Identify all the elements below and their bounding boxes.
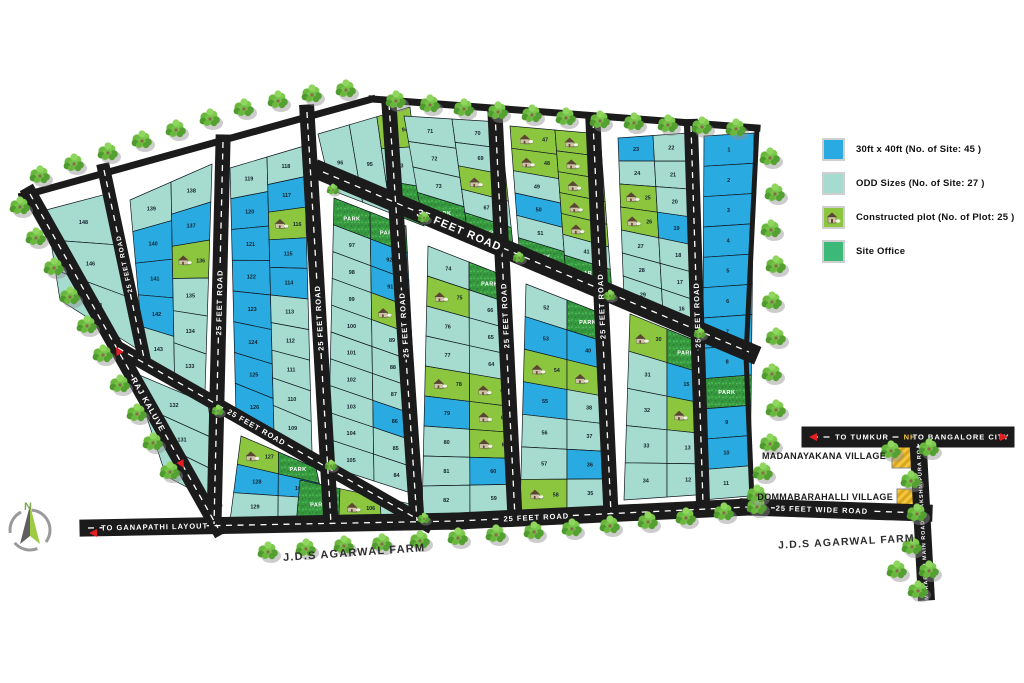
plot-number: 71 [427,129,433,135]
plot-number: 2 [727,178,730,184]
plot-number: 143 [154,347,163,353]
plot-number: 27 [638,244,644,250]
plot-number: 25 [645,195,651,201]
tree-icon [765,183,788,205]
plot-number: 67 [483,206,489,212]
plot-number: 123 [248,307,257,313]
plot-number: 95 [367,162,373,168]
plot-number: 126 [250,405,259,411]
plot-number: 33 [643,443,649,449]
plot-number: 41 [583,249,589,255]
plot-number: 128 [252,480,261,486]
plot-number: 121 [246,242,255,248]
tree-icon [234,98,257,120]
plot-number: 97 [349,243,355,249]
plot-number: 15 [683,382,689,388]
tree-icon [258,541,281,563]
plot-number: 132 [169,403,178,409]
plot-number: 51 [537,231,543,237]
plot-number: 36 [587,463,593,469]
tree-icon [887,560,910,582]
plot-number: 57 [541,462,547,468]
legend: 30ft x 40ft (No. of Site: 45 ) ODD Sizes… [822,138,1014,263]
plot-number: 138 [187,188,196,194]
tree-icon [766,327,789,349]
tree-icon [268,90,291,112]
odd-plot-swatch [822,172,845,195]
legend-label: ODD Sizes (No. of Site: 27 ) [856,178,985,189]
park-label: PARK [289,467,306,473]
plot-number: 110 [287,397,296,403]
plot-number: 137 [186,224,195,230]
plot-number: 102 [347,377,356,383]
house-icon [826,212,841,224]
tree-icon [166,119,189,141]
plot-number: 53 [543,337,549,343]
plot-number: 117 [282,193,291,199]
plot-number: 134 [186,329,196,335]
legend-item-30x40: 30ft x 40ft (No. of Site: 45 ) [822,138,1014,161]
plot-number: 76 [445,324,451,330]
village-label-madanayakana: MADANAYAKANA VILLAGE [762,451,886,461]
plot-number: 9 [725,420,728,426]
plot-number: 10 [723,450,729,456]
plot-number: 73 [436,184,442,190]
legend-item-odd-sizes: ODD Sizes (No. of Site: 27 ) [822,172,1014,195]
plot-number: 112 [286,339,295,345]
plot-number: 86 [392,419,398,425]
plot-number: 127 [265,454,274,460]
plot-number: 16 [679,307,685,313]
plot-number: 12 [685,478,691,484]
site-office-swatch [822,240,845,263]
plot-number: 81 [443,469,449,475]
plot-number: 54 [554,368,560,374]
tree-icon [762,291,785,313]
plot-number: 148 [79,220,88,226]
plot-number: 116 [293,222,302,228]
plot-number: 60 [490,469,496,475]
plot-number: 99 [349,297,355,303]
park-label: PARK [343,216,360,222]
plot-number: 124 [248,340,258,346]
plot-number: 28 [639,268,645,274]
plot-number: 118 [281,164,290,170]
plot-number: 66 [487,308,493,314]
tree-icon [448,527,471,549]
plot-number: 19 [673,226,679,232]
plot-number: 35 [587,491,593,497]
plot-number: 20 [672,199,678,205]
plot-number: 3 [727,208,730,214]
tree-icon [761,219,784,241]
plot-number: 40 [585,349,591,355]
compass: N [2,498,58,561]
plot-number: 98 [349,270,355,276]
plot-number: 139 [147,206,156,212]
park-label: PARK [481,281,498,287]
svg-text:25 FEET ROAD: 25 FEET ROAD [214,269,225,335]
plot-number: 17 [677,280,683,286]
plot-number: 74 [445,266,452,272]
plot-number: 135 [186,294,195,300]
plot-number: 133 [185,364,194,370]
plot-number: 18 [675,253,681,259]
tree-icon [420,94,443,116]
park-label: PARK [579,320,596,326]
constructed-plot-swatch [822,206,845,229]
plot-number: 140 [149,242,158,248]
plot-number: 56 [542,430,548,436]
plot-number: 70 [474,131,480,137]
plot-58 [520,479,567,512]
legend-label: 30ft x 40ft (No. of Site: 45 ) [856,144,981,155]
plot-number: 104 [347,431,357,437]
plot-number: 32 [644,408,650,414]
blue-plot-swatch [822,138,845,161]
tree-icon [762,363,785,385]
plot-number: 146 [86,261,95,267]
plot-number: 37 [586,434,592,440]
svg-text:TO TUMKUR: TO TUMKUR [835,433,889,442]
legend-label: Constructed plot (No. of Plot: 25 ) [856,212,1014,223]
plot-number: 131 [177,437,186,443]
road-label: TO TUMKUR [835,430,890,444]
plot-number: 115 [284,251,293,257]
tree-icon [132,130,155,152]
plot-number: 100 [347,324,356,330]
plot-number: 6 [726,299,729,305]
plot-number: 24 [634,171,641,177]
road-label: TO GANAPATHI LAYOUT [101,519,208,535]
tree-icon [30,165,53,187]
plot-number: 122 [247,275,256,281]
plot-number: 23 [633,147,639,153]
compass-icon: N [2,498,58,556]
plot-number: 79 [444,411,450,417]
plot-number: 120 [245,209,254,215]
plot-number: 101 [347,351,356,357]
plot-number: 96 [337,161,343,167]
legend-item-site-office: Site Office [822,240,1014,263]
plot-number: 114 [284,280,294,286]
tree-icon [64,153,87,175]
plot-number: 75 [457,295,463,301]
tree-icon [753,462,776,484]
legend-item-constructed: Constructed plot (No. of Plot: 25 ) [822,206,1014,229]
plot-number: 69 [477,156,483,162]
plot-number: 141 [150,277,159,283]
plot-number: 91 [387,284,393,290]
plot-number: 125 [249,372,258,378]
plot-number: 142 [152,312,161,318]
tree-icon [760,147,783,169]
plot-number: 55 [542,399,548,405]
plot-number: 13 [685,446,691,452]
compass-north-label: N [24,501,32,513]
plot-number: 1 [727,148,730,154]
plot-number: 77 [444,353,450,359]
map-canvas: 1481461441391401411421431381371361351341… [0,0,1024,683]
plot-number: 136 [196,259,205,265]
plot-number: 87 [391,392,397,398]
plot-number: 111 [287,368,296,374]
plot-number: 119 [244,177,253,183]
plot-number: 129 [250,505,259,511]
plot-number: 85 [393,446,399,452]
plot-number: 89 [389,338,395,344]
plot-number: 30 [656,337,662,343]
plot-number: 49 [534,184,540,190]
plot-number: 106 [366,506,375,512]
plot-number: 78 [456,382,462,388]
plot-number: 38 [586,406,592,412]
tree-icon [766,255,789,277]
plot-number: 109 [288,426,297,432]
tree-icon [98,142,121,164]
plot-number: 8 [726,360,729,366]
plot-number: 92 [386,257,392,263]
plot-number: 50 [536,208,542,214]
plot-number: 5 [726,269,729,275]
tree-icon [302,84,325,106]
plot-number: 21 [670,172,676,178]
tree-icon [336,79,359,101]
plot-number: 58 [553,493,559,499]
plot-number: 52 [543,306,549,312]
plot-number: 113 [285,309,294,315]
plot-number: 48 [544,161,550,167]
village-label-dommabarahalli: DOMMABARAHALLI VILLAGE [757,492,893,502]
plot-number: 80 [444,440,450,446]
plot-number: 82 [443,498,449,504]
tree-icon [454,98,477,120]
tree-icon [200,108,223,130]
plot-number: 65 [488,335,494,341]
plot-number: 47 [542,138,548,144]
plot-number: 59 [491,496,497,502]
legend-label: Site Office [856,246,905,257]
plot-number: 26 [646,220,652,226]
tree-icon [766,399,789,421]
plot-number: 103 [347,404,356,410]
plot-number: 31 [645,373,651,379]
plot-number: 84 [393,473,400,479]
plot-number: 72 [431,156,437,162]
plot-number: 64 [488,362,495,368]
plot-number: 105 [346,458,355,464]
plot-number: 34 [643,479,650,485]
plot-number: 22 [668,146,674,152]
plot-number: 11 [723,481,729,487]
park-label: PARK [718,390,735,396]
plot-number: 88 [390,365,396,371]
road-label: 25 FEET ROAD [212,268,227,338]
road-label: 25 FEET ROAD [310,283,328,353]
site-layout-map: 1481461441391401411421431381371361351341… [0,0,1024,683]
